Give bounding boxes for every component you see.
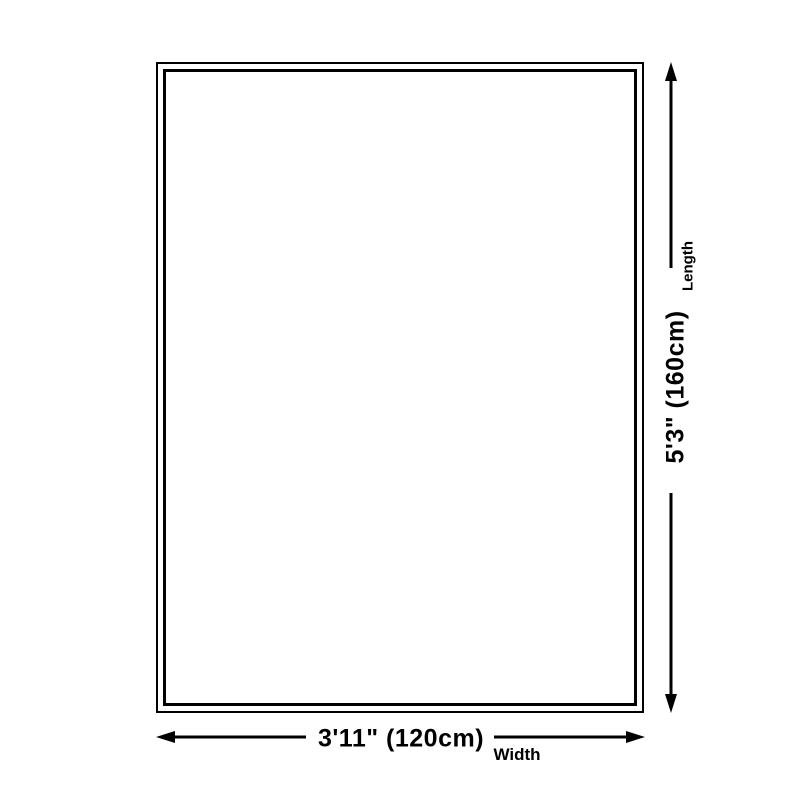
width-arrow-left [156, 731, 306, 743]
width-value: 3'11" (120cm) [318, 725, 484, 754]
length-arrow-up [665, 62, 677, 268]
product-outline-outer-border [156, 62, 644, 713]
length-arrowhead-bottom-icon [665, 694, 677, 713]
length-arrow-down [665, 493, 677, 713]
length-label: Length [680, 241, 697, 291]
product-outline-inner-border [163, 69, 637, 706]
width-arrow-right [494, 731, 645, 743]
length-value: 5'3" (160cm) [662, 310, 691, 463]
width-arrowhead-right-icon [626, 731, 645, 743]
width-label: Width [493, 745, 540, 765]
size-diagram: 5'3" (160cm) Length 3'11" (120cm) Width [0, 0, 800, 800]
length-arrowhead-top-icon [665, 62, 677, 81]
width-arrowhead-left-icon [156, 731, 175, 743]
